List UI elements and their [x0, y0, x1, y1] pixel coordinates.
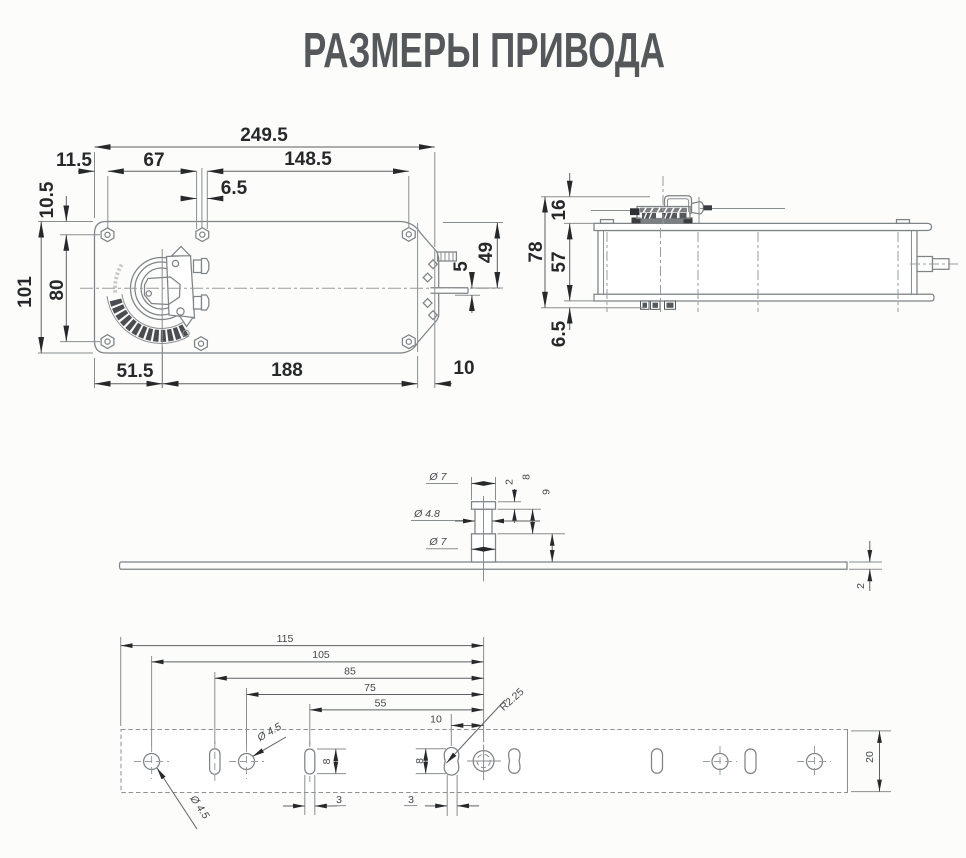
svg-text:80: 80	[47, 279, 68, 300]
svg-text:101: 101	[15, 276, 36, 308]
svg-text:10: 10	[430, 714, 442, 726]
svg-text:55: 55	[375, 698, 387, 710]
svg-text:Ø 4.8: Ø 4.8	[413, 508, 440, 520]
svg-text:3: 3	[408, 794, 414, 806]
svg-text:10: 10	[453, 358, 474, 379]
svg-text:148.5: 148.5	[284, 149, 332, 170]
svg-text:6.5: 6.5	[221, 178, 248, 199]
svg-text:6.5: 6.5	[549, 320, 570, 347]
svg-text:11.5: 11.5	[56, 150, 92, 171]
svg-text:10.5: 10.5	[37, 181, 58, 218]
svg-text:8: 8	[414, 758, 426, 764]
svg-text:20: 20	[864, 751, 876, 763]
svg-text:57: 57	[549, 251, 570, 272]
svg-text:8: 8	[521, 474, 533, 480]
svg-text:РАЗМЕРЫ ПРИВОДА: РАЗМЕРЫ ПРИВОДА	[303, 24, 665, 78]
svg-text:188: 188	[271, 360, 303, 381]
svg-text:49: 49	[476, 242, 497, 263]
svg-text:67: 67	[143, 150, 164, 171]
svg-text:8: 8	[321, 758, 333, 764]
svg-text:105: 105	[312, 649, 330, 661]
svg-text:51.5: 51.5	[117, 361, 154, 382]
svg-text:Ø 7: Ø 7	[429, 471, 448, 483]
svg-text:78: 78	[526, 241, 547, 262]
svg-text:3: 3	[336, 794, 342, 806]
svg-text:85: 85	[344, 666, 356, 678]
svg-text:75: 75	[364, 682, 376, 694]
svg-text:249.5: 249.5	[240, 125, 288, 146]
svg-text:115: 115	[277, 633, 294, 645]
svg-text:2: 2	[855, 583, 867, 589]
svg-text:Ø 7: Ø 7	[429, 536, 448, 548]
svg-text:16: 16	[549, 199, 570, 220]
svg-text:5: 5	[451, 261, 472, 272]
svg-text:9: 9	[541, 489, 553, 495]
svg-text:2: 2	[504, 479, 516, 485]
